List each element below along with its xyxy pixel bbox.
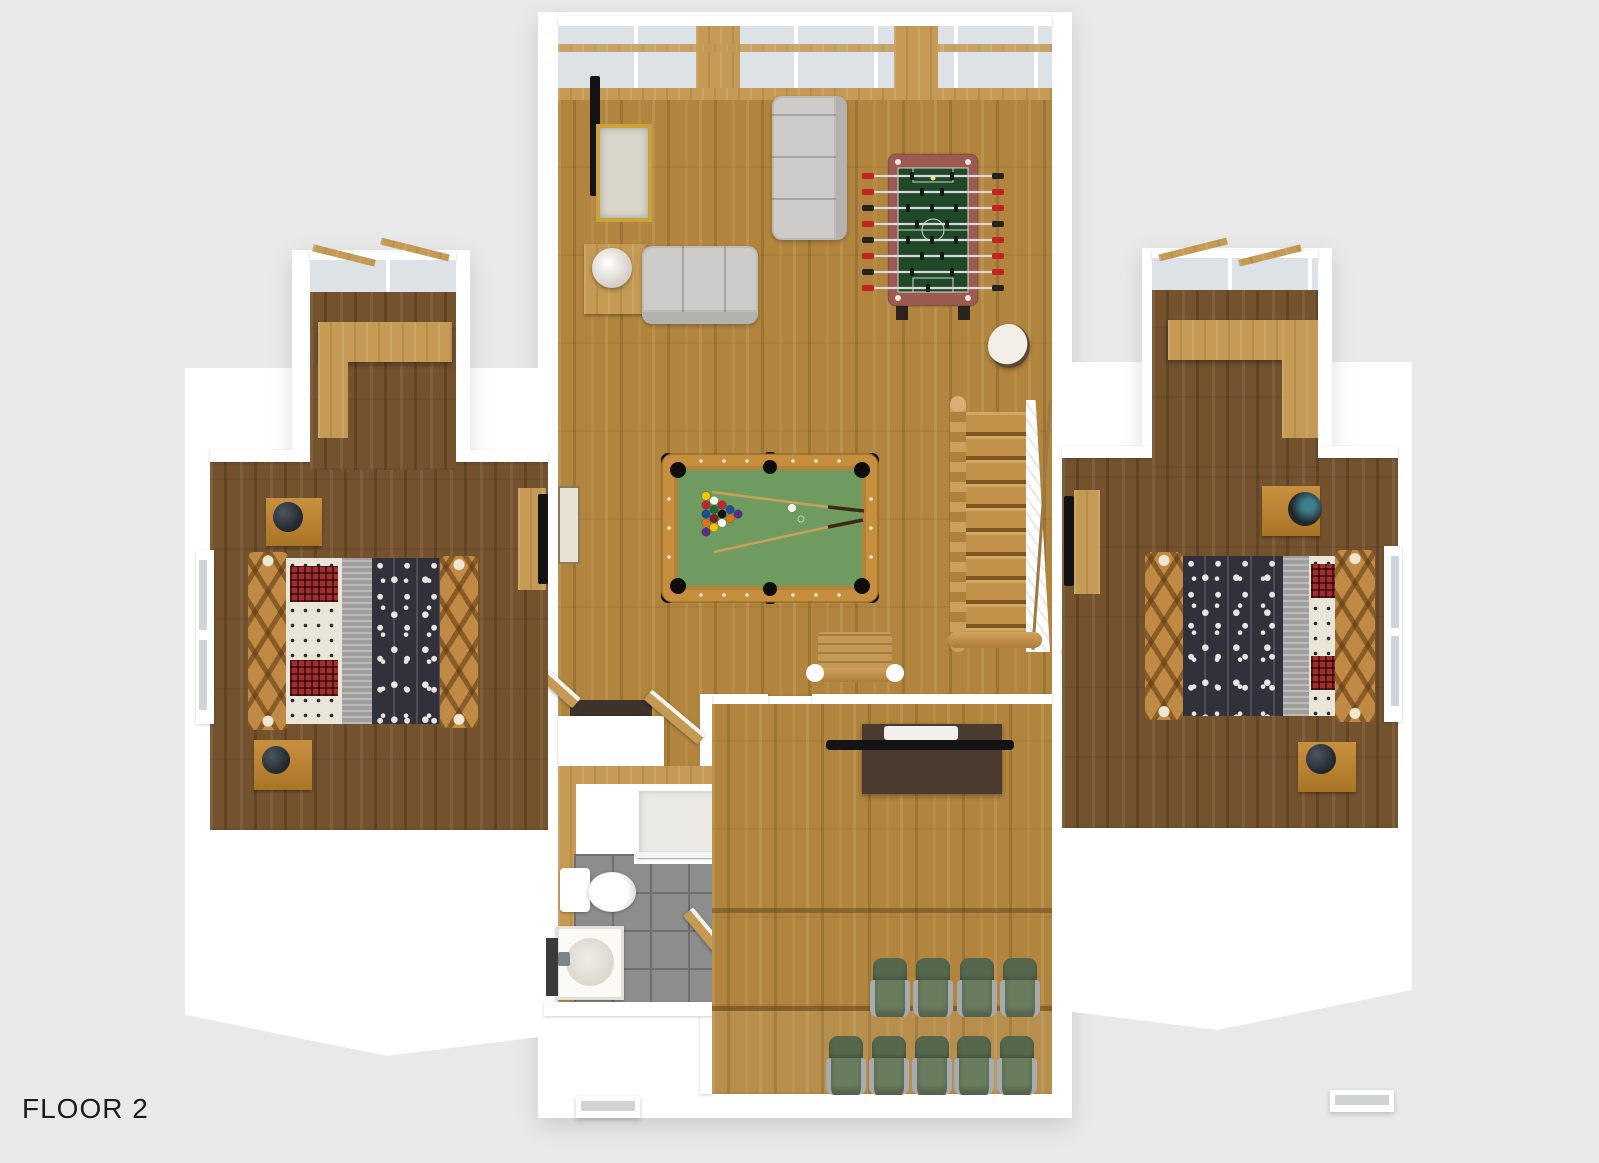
log-bench-cap-left <box>806 664 824 682</box>
bed-left-headboard <box>248 552 288 730</box>
theater-step-edge-1 <box>712 908 1052 913</box>
dormer-right-window <box>1152 258 1318 290</box>
closet-slot <box>570 700 652 716</box>
sink-faucet <box>558 952 570 966</box>
foosball-table <box>860 148 1006 322</box>
lamp-left-bottom <box>262 746 290 774</box>
bed-left-plaid-pillow-2 <box>290 660 338 696</box>
bedroom-right-north-wall-b <box>1318 446 1398 458</box>
floorplan-canvas: FLOOR 2 <box>0 0 1599 1163</box>
recliner-front-row-1 <box>826 1036 866 1095</box>
wall-art <box>558 486 580 564</box>
lamp-left-top <box>273 502 303 532</box>
bedroom-left-window-glass-2 <box>199 640 207 710</box>
floor-label: FLOOR 2 <box>22 1093 149 1125</box>
log-bench <box>818 632 892 672</box>
bed-left-footboard <box>440 556 478 728</box>
stair-stringer <box>950 398 966 652</box>
bedroom-left-north-wall-b <box>456 450 548 462</box>
log-bench-front-rail <box>812 668 898 682</box>
roof-beam <box>558 44 1052 52</box>
bedroom-left-window-glass-1 <box>199 560 207 630</box>
bathroom-north-wall <box>558 766 736 784</box>
bedroom-right-window-glass-2 <box>1391 636 1399 706</box>
bed-left-duvet <box>372 558 440 724</box>
lamp-right-bottom <box>1306 744 1336 774</box>
log-bench-cap-right <box>886 664 904 682</box>
game-room-window-band <box>558 26 1052 88</box>
window-pier-left <box>696 26 740 88</box>
dormer-left-window <box>310 260 456 292</box>
dormer-right-desk-return <box>1282 320 1318 438</box>
bed-right-blanket-fold <box>1283 556 1309 716</box>
pool-table <box>660 452 880 604</box>
bedroom-right-north-wall-a <box>1062 446 1154 458</box>
bathroom-mirror <box>546 938 558 996</box>
window-pier-right <box>894 26 938 88</box>
bed-right-headboard <box>1335 550 1375 722</box>
bedroom-right-window-glass-1 <box>1391 556 1399 628</box>
bathroom-south-wall <box>544 1002 736 1016</box>
window-well-left <box>576 1096 640 1118</box>
three-seat-sofa <box>772 96 847 240</box>
dresser-right-tv <box>1064 496 1074 586</box>
hall-closet <box>558 716 664 772</box>
dormer-left-desk-return <box>318 322 348 438</box>
round-stool <box>988 324 1030 368</box>
bed-left-plaid-pillow-1 <box>290 566 338 602</box>
stair-newel-post <box>950 396 966 412</box>
table-lamp <box>592 248 632 288</box>
toilet-tank <box>560 868 590 912</box>
window-well-right <box>1330 1090 1394 1112</box>
stair-rail-bottom <box>948 632 1042 648</box>
bedroom-left-north-wall-a <box>210 450 310 462</box>
recliner-back-row-3 <box>957 958 997 1017</box>
bed-left-blanket-fold <box>342 558 372 724</box>
dresser-left-tv <box>538 494 548 584</box>
theater-tv-mount <box>884 726 958 740</box>
recliner-back-row-1 <box>870 958 910 1017</box>
recliner-front-row-4 <box>954 1036 994 1095</box>
shower-glass-door <box>636 852 724 858</box>
recliner-back-row-4 <box>1000 958 1040 1017</box>
recliner-front-row-2 <box>869 1036 909 1095</box>
bed-right-footboard <box>1145 552 1183 720</box>
theater-tv <box>826 740 1014 750</box>
console-table <box>596 124 652 222</box>
game-room-window-frame <box>558 16 1052 26</box>
staircase-steps <box>966 412 1026 632</box>
sink-basin <box>566 938 614 986</box>
lamp-right-top <box>1288 492 1322 526</box>
bed-right-duvet <box>1183 556 1283 716</box>
recliner-front-row-3 <box>912 1036 952 1095</box>
recliner-front-row-5 <box>997 1036 1037 1095</box>
loveseat <box>642 246 758 324</box>
dresser-right <box>1074 490 1100 594</box>
recliner-back-row-2 <box>913 958 953 1017</box>
toilet-bowl <box>588 872 636 912</box>
